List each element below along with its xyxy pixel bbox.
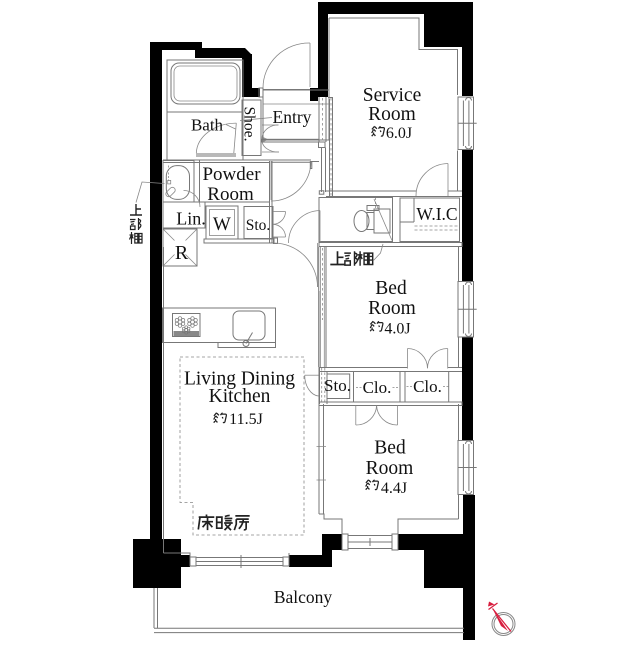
svg-text:Sto.: Sto. <box>246 217 271 234</box>
svg-text:Kitchen: Kitchen <box>209 386 271 407</box>
svg-text:Room: Room <box>207 184 254 205</box>
svg-text:Balcony: Balcony <box>274 587 333 607</box>
svg-text:W.I.C: W.I.C <box>416 204 457 224</box>
svg-text:Lin.: Lin. <box>176 209 206 229</box>
svg-text:Room: Room <box>368 298 416 319</box>
svg-text:Room: Room <box>368 104 416 125</box>
svg-text:Service: Service <box>363 85 421 106</box>
svg-text:W: W <box>213 214 231 235</box>
svg-text:6.0J: 6.0J <box>386 125 412 142</box>
svg-text:Bed: Bed <box>374 438 406 459</box>
svg-text:Powder: Powder <box>202 164 261 185</box>
svg-text:11.5J: 11.5J <box>229 411 263 428</box>
svg-text:4.4J: 4.4J <box>381 480 407 497</box>
svg-text:4.0J: 4.0J <box>384 321 410 338</box>
svg-text:Bed: Bed <box>375 278 407 299</box>
svg-text:Clo.: Clo. <box>413 377 442 396</box>
svg-text:R: R <box>175 242 189 264</box>
svg-text:Bath: Bath <box>191 116 224 135</box>
svg-text:Room: Room <box>366 458 414 479</box>
svg-text:Entry: Entry <box>273 107 312 127</box>
svg-text:Shoe.: Shoe. <box>241 107 258 142</box>
svg-text:Clo.: Clo. <box>363 378 392 397</box>
svg-text:Sto.: Sto. <box>324 376 351 395</box>
